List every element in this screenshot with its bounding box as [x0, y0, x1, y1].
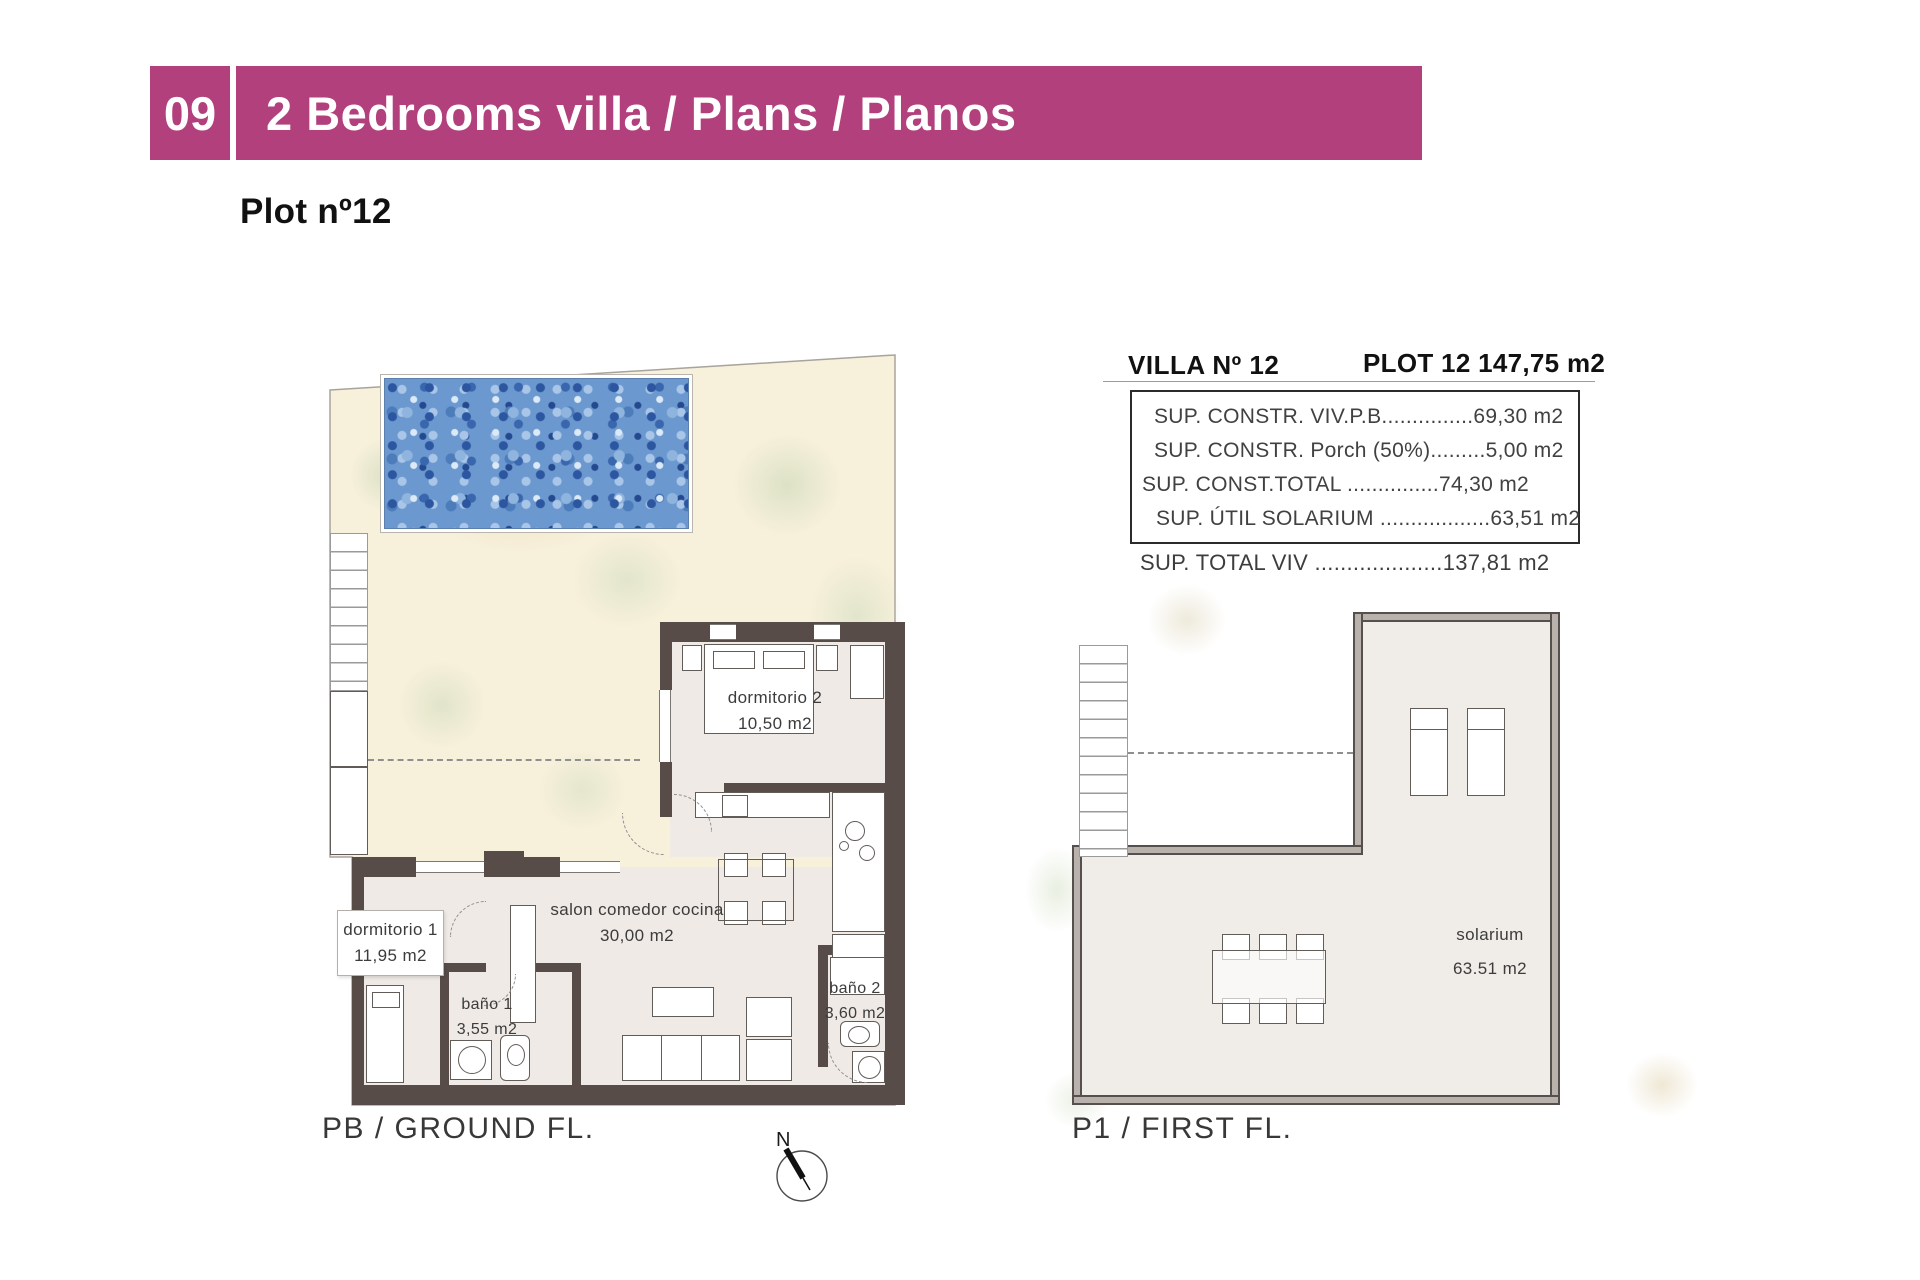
window	[416, 861, 484, 873]
stairs	[1079, 645, 1128, 857]
window	[814, 624, 840, 640]
room-label-salon: salon comedor cocina 30,00 m2	[547, 897, 727, 950]
sun-lounger	[1467, 708, 1505, 796]
surface-row: SUP. CONSTR. VIV.P.B...............69,30…	[1132, 400, 1578, 434]
room-area: 63.51 m2	[1420, 952, 1560, 986]
surface-row: SUP. CONST.TOTAL ...............74,30 m2	[1132, 468, 1578, 502]
exterior-stairs	[330, 533, 368, 691]
coffee-table	[652, 987, 714, 1017]
north-compass: N	[762, 1128, 842, 1218]
pillow	[763, 651, 805, 669]
room-name: baño 1	[442, 993, 532, 1018]
toilet-bowl	[848, 1026, 870, 1044]
lounger-pillow-line	[1411, 729, 1447, 730]
window	[659, 690, 671, 762]
wall	[352, 857, 364, 1105]
first-floor-caption: P1 / FIRST FL.	[1072, 1112, 1293, 1146]
room-area: 10,50 m2	[695, 711, 855, 737]
room-name: salon comedor cocina	[547, 897, 727, 923]
nightstand	[816, 645, 838, 671]
room-area: 30,00 m2	[547, 923, 727, 949]
wall	[660, 622, 905, 642]
hob-burner	[859, 845, 875, 861]
dashed-axis	[368, 759, 640, 761]
room-name: baño 2	[820, 977, 890, 1002]
header-bar: 09 2 Bedrooms villa / Plans / Planos	[150, 66, 1422, 160]
first-floor-plan: solarium 63.51 m2	[1072, 600, 1572, 1115]
room-area: 11,95 m2	[343, 943, 438, 969]
wall	[1353, 612, 1560, 622]
sun-lounger	[1410, 708, 1448, 796]
ground-floor-caption: PB / GROUND FL.	[322, 1112, 595, 1146]
room-label-bano2: baño 2 3,60 m2	[820, 977, 890, 1027]
wall	[572, 963, 581, 1085]
bed	[366, 985, 404, 1083]
storage-box	[330, 767, 368, 855]
plan-sheet: 09 2 Bedrooms villa / Plans / Planos Plo…	[0, 0, 1920, 1280]
bathroom-sink	[450, 1040, 492, 1080]
kitchen-counter	[832, 792, 885, 932]
wall	[724, 783, 890, 792]
wall	[1550, 612, 1560, 1105]
dining-table	[718, 859, 794, 921]
hob-burner	[839, 841, 849, 851]
wall	[1072, 1095, 1560, 1105]
window	[560, 861, 620, 873]
sofa-divider	[661, 1036, 662, 1080]
room-area: 3,60 m2	[820, 1002, 890, 1027]
ground-floor-plan: dormitorio 2 10,50 m2 salon comedor coci…	[322, 345, 922, 1115]
page-title: 2 Bedrooms villa / Plans / Planos	[236, 86, 1017, 141]
wardrobe	[850, 645, 884, 699]
title-underline	[1103, 381, 1595, 382]
sofa-divider	[701, 1036, 702, 1080]
swimming-pool	[384, 378, 689, 529]
lounger-pillow-line	[1468, 729, 1504, 730]
room-name: dormitorio 1	[343, 917, 438, 943]
sink-bowl	[458, 1046, 486, 1074]
room-name: solarium	[1420, 918, 1560, 952]
sofa-chaise	[746, 1039, 792, 1081]
wall	[660, 622, 672, 690]
bush	[712, 415, 862, 555]
room-area: 3,55 m2	[442, 1018, 532, 1043]
room-labelcard-dormitorio1: dormitorio 1 11,95 m2	[337, 910, 444, 976]
plot-area-title: PLOT 12 147,75 m2	[1363, 348, 1605, 379]
pillow	[372, 992, 400, 1008]
room-label-dormitorio1: dormitorio 1 11,95 m2	[343, 917, 438, 970]
wall	[352, 1085, 905, 1105]
wall	[484, 857, 560, 877]
toilet-bowl	[507, 1044, 525, 1066]
solarium-floor-upper	[1363, 622, 1550, 855]
window	[710, 624, 736, 640]
plot-heading: Plot nº12	[240, 192, 392, 232]
outdoor-table	[1212, 950, 1326, 1004]
surface-table: SUP. CONSTR. VIV.P.B...............69,30…	[1130, 390, 1580, 544]
room-label-dormitorio2: dormitorio 2 10,50 m2	[695, 685, 855, 738]
wall	[660, 762, 672, 817]
room-label-solarium: solarium 63.51 m2	[1420, 918, 1560, 986]
kitchen-sink	[722, 795, 748, 817]
storage-box	[330, 691, 368, 767]
bush	[382, 645, 502, 765]
wall	[885, 622, 905, 1105]
pillow	[713, 651, 755, 669]
wall	[1353, 612, 1363, 855]
room-label-bano1: baño 1 3,55 m2	[442, 993, 532, 1043]
surface-row: SUP. CONSTR. Porch (50%).........5,00 m2	[1132, 434, 1578, 468]
bush	[1132, 570, 1242, 670]
dashed-axis	[1128, 752, 1353, 754]
hob-burner	[845, 821, 865, 841]
section-number: 09	[150, 66, 236, 160]
kitchen-counter	[695, 792, 830, 818]
bush	[1612, 1040, 1712, 1130]
room-name: dormitorio 2	[695, 685, 855, 711]
wall	[440, 963, 486, 972]
sofa-chaise	[746, 997, 792, 1037]
nightstand	[682, 645, 702, 671]
villa-title: VILLA Nº 12	[1128, 350, 1279, 381]
surface-row: SUP. ÚTIL SOLARIUM ..................63,…	[1132, 502, 1578, 536]
wall	[1072, 845, 1082, 1105]
compass-north-label: N	[776, 1129, 790, 1151]
sofa	[622, 1035, 740, 1081]
